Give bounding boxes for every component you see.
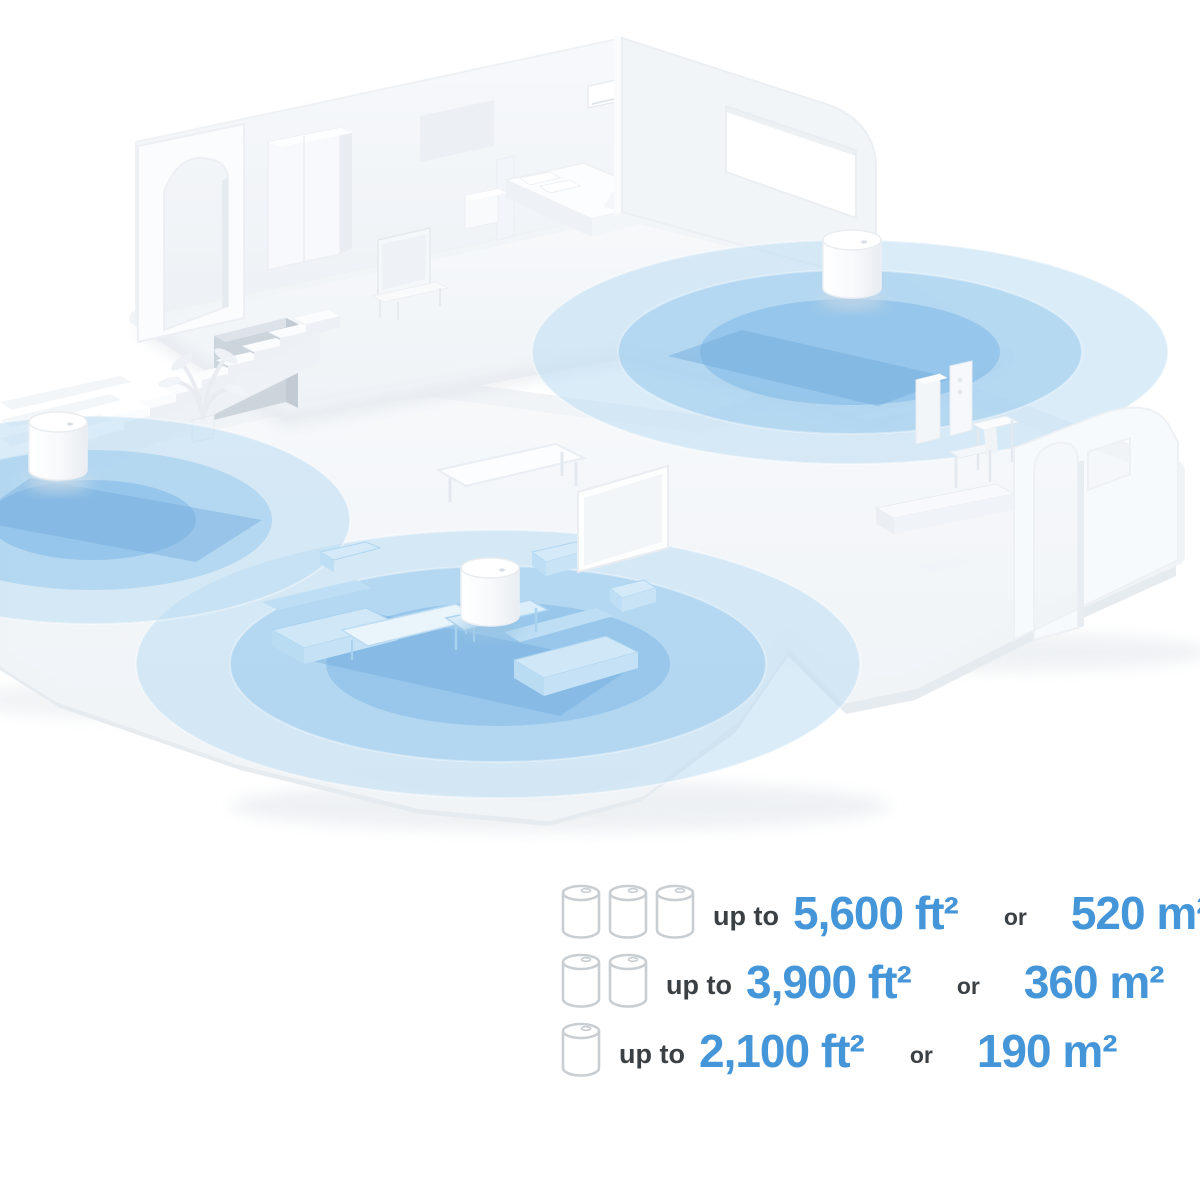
unit-count-icons: [560, 1022, 602, 1080]
up-to-label: up to: [619, 1039, 685, 1070]
wardrobe: [268, 128, 352, 270]
coverage-legend: up to 5,600 ft² or 520 m² up to 3,900 ft…: [560, 884, 1200, 1091]
up-to-label: up to: [713, 901, 779, 932]
mesh-unit-icon: [560, 884, 602, 942]
coverage-row-2-units: up to 3,900 ft² or 360 m²: [560, 953, 1200, 1011]
metric-coverage-value: 190 m²: [977, 1024, 1117, 1078]
or-label: or: [1004, 904, 1027, 931]
home-coverage-illustration: [0, 0, 1200, 880]
mesh-unit-upper-floor: [819, 230, 885, 309]
page: up to 5,600 ft² or 520 m² up to 3,900 ft…: [0, 0, 1200, 1200]
coverage-row-1-unit: up to 2,100 ft² or 190 m²: [560, 1022, 1200, 1080]
unit-count-icons: [560, 953, 649, 1011]
up-to-label: up to: [666, 970, 732, 1001]
unit-count-icons: [560, 884, 696, 942]
mesh-unit-icon: [560, 1022, 602, 1080]
or-label: or: [910, 1042, 933, 1069]
imperial-coverage-value: 5,600 ft²: [793, 886, 958, 940]
mesh-unit-icon: [560, 953, 602, 1011]
or-label: or: [957, 973, 980, 1000]
imperial-coverage-value: 3,900 ft²: [746, 955, 911, 1009]
mesh-unit-icon: [607, 884, 649, 942]
coverage-row-3-units: up to 5,600 ft² or 520 m²: [560, 884, 1200, 942]
mesh-unit-icon: [607, 953, 649, 1011]
mesh-unit-icon: [654, 884, 696, 942]
imperial-coverage-value: 2,100 ft²: [699, 1024, 864, 1078]
metric-coverage-value: 520 m²: [1071, 886, 1200, 940]
metric-coverage-value: 360 m²: [1024, 955, 1164, 1009]
mesh-unit-living-room: [457, 558, 523, 637]
mesh-unit-entry: [26, 412, 90, 491]
